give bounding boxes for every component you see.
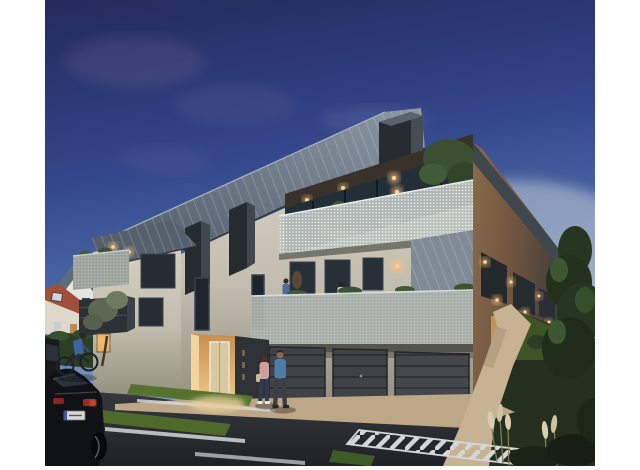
white-frame	[0, 0, 640, 470]
entrance-lobby	[191, 334, 235, 400]
address-glyph	[242, 374, 245, 380]
figure-head	[283, 278, 288, 283]
entrance-light-spill	[189, 396, 245, 412]
woman-shoe	[258, 401, 263, 404]
garage-ribs	[395, 352, 469, 400]
sconce-glow	[391, 260, 404, 273]
woman-shoe	[265, 401, 270, 404]
man-shoe	[273, 405, 279, 408]
dark-car-window	[46, 344, 59, 362]
window	[363, 258, 383, 290]
dormer-fin-side	[247, 202, 255, 268]
address-glyph	[242, 362, 245, 368]
purple-cloud	[65, 36, 205, 88]
rider-torso	[73, 338, 84, 356]
taillight	[53, 398, 64, 404]
mesh-dots	[251, 290, 483, 344]
plate-eu-band	[64, 411, 67, 420]
purple-cloud	[119, 146, 211, 174]
tree-canopy	[106, 291, 128, 309]
balcony-side	[127, 296, 135, 332]
taillight-glow	[90, 400, 96, 406]
scene-canvas	[45, 0, 595, 466]
upper-mesh-balcony	[73, 248, 129, 291]
dormer-fin	[229, 202, 247, 276]
conifer-highlight	[548, 320, 566, 344]
rider-head	[80, 333, 86, 339]
mesh-dots	[73, 250, 129, 290]
figure-head	[338, 281, 343, 286]
conifer-highlight	[550, 258, 568, 282]
address-glyph	[242, 350, 245, 356]
tall-window	[195, 278, 209, 330]
skylight	[51, 292, 62, 301]
interior-glow	[292, 271, 302, 289]
sconce-glow	[388, 172, 400, 184]
rendering-photo	[45, 0, 595, 466]
glazed-door	[141, 254, 175, 288]
woman-head	[261, 356, 267, 362]
garage-handle	[360, 375, 363, 378]
tree-canopy	[419, 163, 447, 185]
man-shirt	[275, 359, 287, 379]
house-window	[54, 322, 61, 331]
man-shoe	[283, 405, 289, 408]
tree-canopy	[83, 314, 103, 330]
purple-cloud	[175, 84, 295, 124]
conifer-highlight	[575, 287, 595, 313]
lit-reveal	[191, 334, 199, 398]
man-hair	[277, 351, 283, 352]
window	[139, 298, 163, 326]
